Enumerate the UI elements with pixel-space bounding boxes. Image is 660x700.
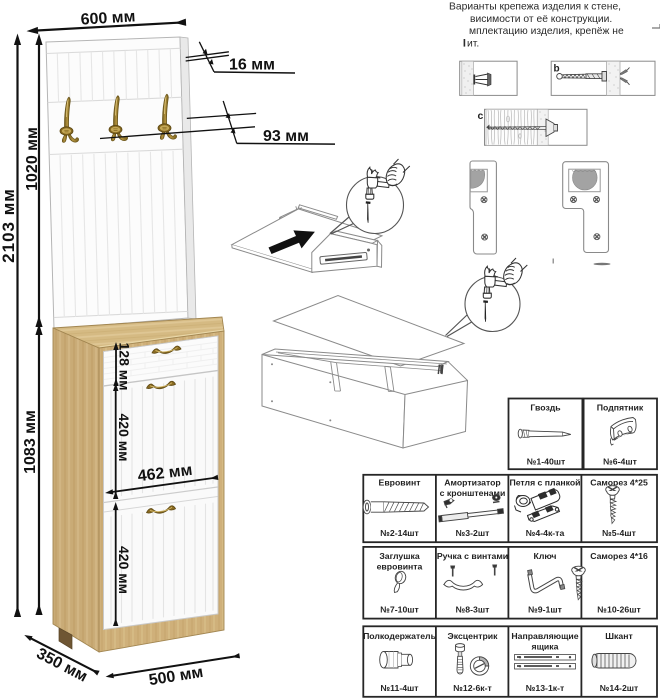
svg-text:№6-4шт: №6-4шт [603, 457, 637, 467]
svg-text:Полкодержатель: Полкодержатель [363, 631, 436, 641]
svg-text:Шкант: Шкант [605, 631, 633, 641]
svg-text:№7-10шт: №7-10шт [380, 605, 419, 615]
svg-text:Саморез 4*16: Саморез 4*16 [590, 551, 648, 561]
svg-text:Петля с планкой: Петля с планкой [509, 478, 580, 488]
svg-text:Ручка с винтами: Ручка с винтами [437, 551, 508, 561]
svg-text:№8-3шт: №8-3шт [456, 605, 490, 615]
svg-text:b: b [554, 64, 560, 75]
svg-text:420 мм: 420 мм [116, 546, 132, 594]
svg-text:№1-40шт: №1-40шт [527, 457, 566, 467]
svg-text:93 мм: 93 мм [263, 128, 309, 145]
svg-text:Ключ: Ключ [534, 551, 557, 561]
svg-text:№14-2шт: №14-2шт [600, 683, 639, 693]
svg-text:ящика: ящика [532, 641, 559, 651]
svg-text:№12-6к-т: №12-6к-т [453, 683, 492, 693]
svg-text:№13-1к-т: №13-1к-т [526, 683, 565, 693]
svg-text:420 мм: 420 мм [116, 414, 132, 462]
svg-text:16 мм: 16 мм [229, 57, 275, 74]
svg-text:№2-14шт: №2-14шт [380, 528, 419, 538]
svg-text:Саморез 4*25: Саморез 4*25 [590, 478, 648, 488]
svg-text:1020 мм: 1020 мм [24, 127, 41, 191]
svg-text:мплектацию изделия, крепёж не: мплектацию изделия, крепёж не [469, 26, 624, 37]
svg-text:c: c [478, 110, 484, 122]
svg-text:№4-4к-та: №4-4к-та [526, 528, 565, 538]
svg-text:Гвоздь: Гвоздь [530, 403, 560, 413]
svg-text:Варианты крепежа изделия к сте: Варианты крепежа изделия к стене, [449, 2, 621, 13]
svg-text:№9-1шт: №9-1шт [528, 605, 562, 615]
svg-text:висимости от её конструкции.: висимости от её конструкции. [470, 14, 612, 25]
svg-text:ит.: ит. [467, 39, 479, 50]
svg-text:№3-2шт: №3-2шт [456, 528, 490, 538]
svg-text:Евровинт: Евровинт [379, 478, 422, 488]
svg-text:128 мм: 128 мм [117, 343, 133, 391]
svg-text:600 мм: 600 мм [80, 8, 136, 28]
svg-text:1083 мм: 1083 мм [22, 410, 39, 474]
svg-text:Направляющие: Направляющие [511, 631, 578, 641]
svg-text:Заглушка: Заглушка [379, 551, 420, 561]
svg-text:№11-4шт: №11-4шт [380, 683, 419, 693]
svg-text:Амортизатор: Амортизатор [444, 478, 500, 488]
svg-text:Подпятник: Подпятник [597, 403, 644, 413]
svg-text:Эксцентрик: Эксцентрик [448, 631, 499, 641]
svg-text:2103 мм: 2103 мм [0, 188, 18, 263]
svg-text:№10-26шт: №10-26шт [597, 605, 641, 615]
svg-text:евровинта: евровинта [377, 562, 423, 572]
svg-text:№5-4шт: №5-4шт [602, 528, 636, 538]
